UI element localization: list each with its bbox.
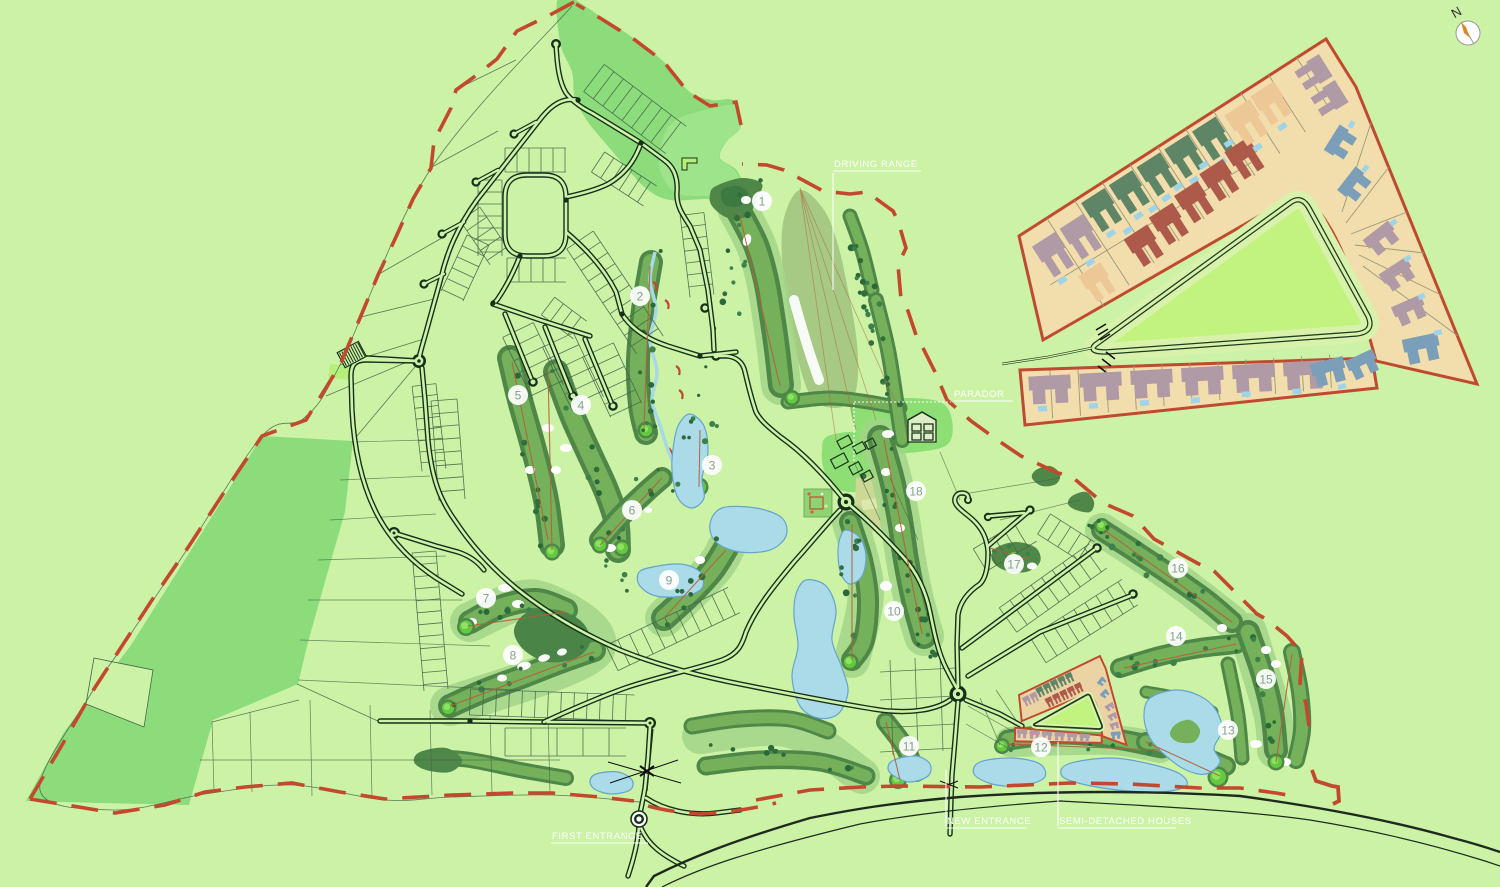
svg-text:1: 1	[759, 195, 766, 209]
svg-text:18: 18	[909, 485, 923, 499]
svg-text:DRIVING RANGE: DRIVING RANGE	[834, 159, 918, 170]
svg-text:4: 4	[578, 399, 585, 413]
svg-text:14: 14	[1169, 630, 1183, 644]
svg-text:13: 13	[1221, 724, 1235, 738]
svg-text:11: 11	[903, 740, 916, 754]
svg-text:12: 12	[1034, 741, 1048, 755]
svg-text:7: 7	[483, 592, 490, 606]
svg-text:SEMI-DETACHED HOUSES: SEMI-DETACHED HOUSES	[1059, 816, 1192, 827]
svg-text:15: 15	[1259, 673, 1273, 687]
svg-text:6: 6	[629, 504, 636, 518]
svg-text:PARADOR: PARADOR	[954, 389, 1004, 400]
svg-text:17: 17	[1007, 558, 1021, 572]
svg-text:FIRST ENTRANCE: FIRST ENTRANCE	[552, 831, 643, 842]
svg-text:10: 10	[887, 605, 901, 619]
svg-text:3: 3	[709, 459, 716, 473]
svg-text:16: 16	[1171, 562, 1185, 576]
svg-text:NEW ENTRANCE: NEW ENTRANCE	[947, 816, 1031, 827]
svg-text:5: 5	[515, 389, 522, 403]
svg-text:8: 8	[510, 649, 517, 663]
svg-text:2: 2	[637, 290, 644, 304]
svg-text:9: 9	[666, 574, 673, 588]
